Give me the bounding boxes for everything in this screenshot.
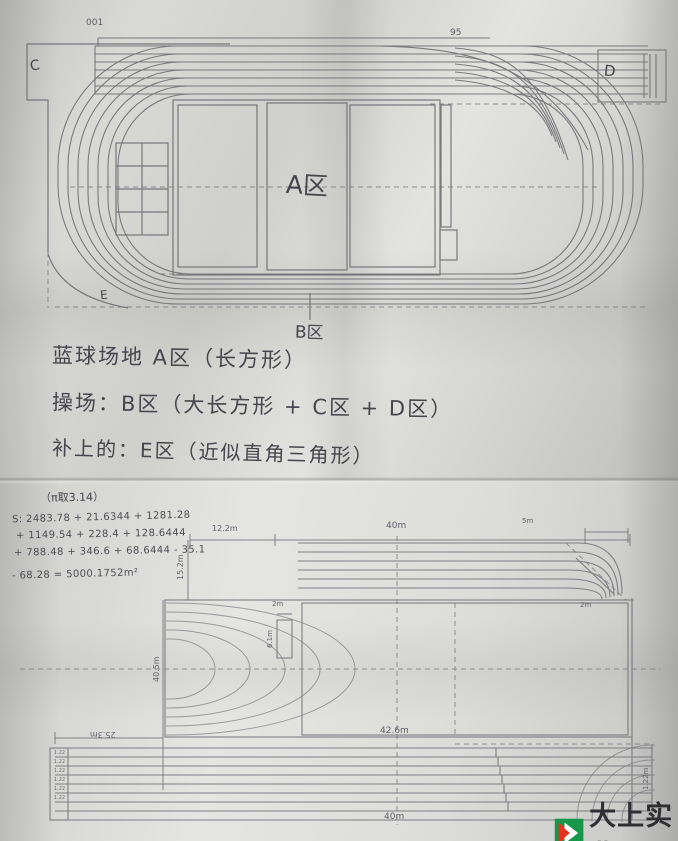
- company-name: 大上实业: [589, 794, 678, 841]
- dim-small-rect-width: 2m: [272, 600, 283, 608]
- dim-inner-width: 42.6m: [380, 726, 409, 736]
- dim-top-left: 12.2m: [212, 524, 238, 533]
- lane-mark: 1.22: [51, 776, 68, 785]
- dim-top-mid: 40m: [386, 521, 406, 531]
- dimension-lines: [55, 528, 630, 790]
- calc-pi-note: （π取3.14）: [40, 488, 104, 505]
- dim-lane-width: 1.22m: [642, 768, 650, 790]
- note-basketball-zone-a: 蓝球场地 A区（长方形）: [52, 339, 308, 374]
- dashed-guides: [48, 104, 660, 308]
- zone-b-label: B区: [295, 318, 325, 344]
- ref-number-top-right: 95: [450, 28, 461, 38]
- company-watermark: 大上实业: [554, 794, 678, 841]
- zone-a-label: A区: [285, 165, 329, 203]
- dim-top-right: 5m: [522, 517, 533, 525]
- track-outline: [50, 543, 652, 820]
- dim-left-outer: 15.2m: [176, 554, 185, 580]
- lane-mark: 1.22: [51, 749, 68, 758]
- lane-mark: 1.22: [51, 785, 68, 794]
- dim-corner: 2m: [580, 601, 591, 609]
- zone-d-label: D: [603, 61, 616, 80]
- lane-width-marks: 1.22 1.22 1.22 1.22 1.22 1.22: [51, 749, 68, 803]
- dim-bottom: 40m: [384, 812, 404, 822]
- zone-c-label: C: [29, 57, 41, 74]
- lane-mark: 1.22: [51, 758, 68, 767]
- dim-small-rect-height: 6.1m: [266, 630, 274, 648]
- ref-number-top-left: 001: [86, 18, 103, 28]
- dim-straight-segment: 25.3m: [90, 730, 116, 739]
- lane-mark: 1.22: [51, 794, 68, 803]
- track-lanes: [58, 38, 666, 304]
- zone-e-label: E: [99, 288, 108, 303]
- company-logo-icon: [554, 814, 584, 841]
- lane-mark: 1.22: [51, 767, 68, 776]
- photo-of-hand-drawn-plans: 001 95 C D A区 B区 E 蓝球场地 A区（长方形） 操场：B区（大长…: [0, 0, 678, 841]
- dim-left-inner: 40.5m: [152, 656, 161, 682]
